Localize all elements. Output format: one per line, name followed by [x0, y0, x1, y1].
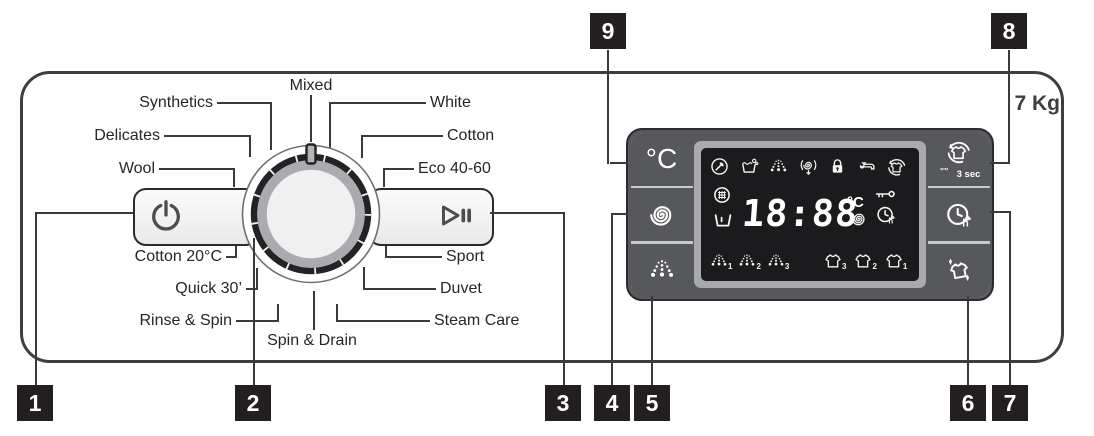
callout-line-1 [35, 212, 133, 214]
tub-icon [711, 207, 735, 231]
status-icon-row [709, 156, 907, 177]
program-label-synthetics: Synthetics [139, 94, 213, 112]
right-button-column: 3 sec [928, 133, 990, 297]
program-label-rinse-spin: Rinse & Spin [140, 312, 233, 330]
program-label-mixed: Mixed [280, 77, 342, 95]
display-time: 18:88 [740, 192, 859, 235]
soil-level-indicators: 3 2 1 [823, 251, 907, 271]
screen-bezel: 18:88 °C 1 2 3 3 2 1 [694, 141, 926, 288]
water-tap-icon [857, 156, 878, 177]
callout-4: 4 [594, 385, 630, 421]
temperature-button[interactable]: °C [631, 133, 693, 186]
connector-line [159, 168, 235, 170]
program-label-cotton: Cotton [447, 127, 494, 145]
program-label-wool: Wool [119, 160, 155, 178]
key-icon [937, 168, 954, 180]
callout-9: 9 [590, 13, 626, 49]
wash-tub-bubbles-icon [739, 156, 760, 177]
callout-1: 1 [17, 385, 53, 421]
delay-clock-h-icon [944, 200, 974, 230]
spin-spiral-icon [850, 210, 868, 228]
display-screen: 18:88 °C 1 2 3 3 2 1 [701, 148, 919, 281]
delay-end-button[interactable] [928, 188, 990, 241]
spin-spiral-icon [647, 200, 677, 230]
program-label-delicates: Delicates [94, 127, 160, 145]
rinse-level-1: 1 [709, 251, 732, 271]
connector-line [385, 256, 442, 258]
connector-line [313, 291, 315, 330]
connector-line [336, 304, 338, 322]
callout-2: 2 [235, 385, 271, 421]
connector-line [336, 320, 430, 322]
rinse-level-2: 2 [737, 251, 760, 271]
child-lock-icon [827, 156, 848, 177]
door-window-icon [711, 184, 733, 206]
callout-line-9 [610, 162, 628, 164]
connector-line [217, 102, 272, 104]
callout-line-7 [990, 211, 1011, 213]
rinse-droplets-icon [768, 156, 789, 177]
display-module: °C 18:88 [626, 128, 994, 301]
callout-line-4 [611, 213, 628, 215]
callout-line-6 [967, 296, 969, 385]
soil-level-1: 1 [884, 251, 907, 271]
callout-line-1 [35, 212, 37, 385]
callout-line-9 [607, 50, 609, 164]
hold-label: 3 sec [957, 169, 981, 180]
play-pause-icon [435, 197, 475, 234]
rinse-level-indicators: 1 2 3 [709, 251, 789, 271]
program-label-duvet: Duvet [440, 280, 482, 298]
temp-unit-label: °C [847, 194, 864, 211]
callout-line-8 [1008, 50, 1010, 164]
program-label-sport: Sport [446, 248, 484, 266]
program-dial-knob[interactable] [231, 134, 391, 294]
callout-line-2 [253, 238, 255, 385]
program-label-spin-drain: Spin & Drain [260, 332, 364, 350]
callout-line-3 [563, 212, 565, 385]
rinse-droplets-icon [647, 255, 677, 285]
callout-line-3 [490, 212, 565, 214]
rinse-level-3: 3 [766, 251, 789, 271]
callout-line-8 [990, 162, 1010, 164]
callout-7: 7 [992, 385, 1028, 421]
program-label-eco4060: Eco 40-60 [418, 160, 491, 178]
delay-clock-h-icon [875, 204, 897, 226]
hold-hint: 3 sec [937, 168, 981, 180]
soil-level-3: 3 [823, 251, 846, 271]
capacity-label: 7 Kg [1008, 92, 1060, 116]
drum-refresh-button[interactable]: 3 sec [928, 133, 990, 186]
spin-drain-icon [798, 156, 819, 177]
connector-line [236, 320, 279, 322]
rinse-button[interactable] [631, 244, 693, 297]
left-button-column: °C [631, 133, 693, 297]
soil-level-2: 2 [853, 251, 876, 271]
callout-5: 5 [634, 385, 670, 421]
callout-3: 3 [545, 385, 581, 421]
shirt-sparkle-icon [944, 255, 974, 285]
key-icon [873, 182, 897, 206]
spin-button[interactable] [631, 188, 693, 241]
service-wrench-icon [709, 156, 730, 177]
shirt-refresh-icon [886, 156, 907, 177]
diagram-canvas: h [0, 0, 1094, 436]
shirt-refresh-icon [945, 138, 972, 165]
connector-line [329, 102, 426, 104]
callout-line-7 [1009, 211, 1011, 385]
connector-line [277, 304, 279, 322]
program-label-steam-care: Steam Care [434, 312, 519, 330]
wrinkle-steam-button[interactable] [928, 244, 990, 297]
power-icon [148, 197, 184, 233]
callout-line-5 [651, 296, 653, 385]
callout-line-4 [611, 213, 613, 385]
callout-8: 8 [991, 13, 1027, 49]
dial-pointer-notch [307, 145, 316, 164]
callout-6: 6 [950, 385, 986, 421]
program-label-cotton20: Cotton 20°C [135, 248, 222, 266]
temperature-label: °C [646, 145, 677, 173]
program-label-white: White [430, 94, 471, 112]
